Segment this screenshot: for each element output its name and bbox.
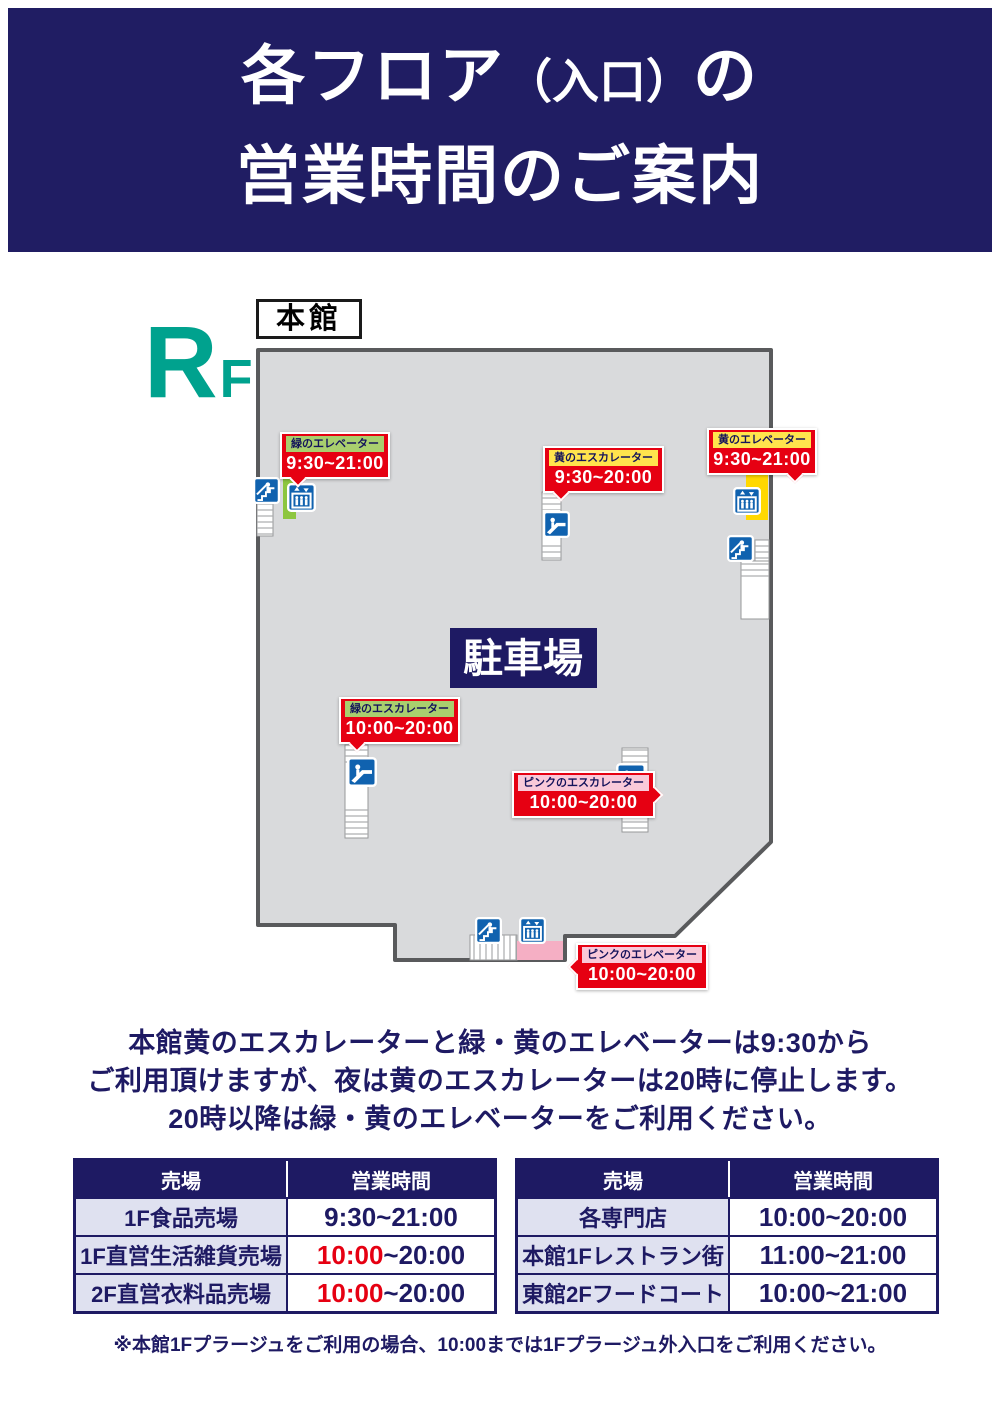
hours-main-part: 9:30~21:00 [324,1202,458,1233]
hours-main-part: 10:00~20:00 [759,1202,907,1233]
hours-red-part: 10:00 [317,1240,384,1271]
marker-green-elevator: 緑のエレベーター 9:30~21:00 [280,432,390,479]
shop-name: 各専門店 [518,1199,730,1235]
shop-name: 2F直営衣料品売場 [76,1275,288,1311]
notice-line: ご利用頂けますが、夜は黄のエスカレーターは20時に停止します。 [0,1062,1000,1100]
marker-facility-label: 黄のエレベーター [713,432,811,448]
floor-map: 駐車場 [255,345,785,1005]
marker-hours: 9:30~21:00 [713,448,811,470]
title-part-floors: 各フロア [241,40,505,112]
marker-facility-label: 黄のエスカレーター [549,450,658,466]
marker-hours: 10:00~20:00 [345,717,454,739]
shop-name: 本館1Fレストラン街 [518,1237,730,1273]
notice-line: 20時以降は緑・黄のエレベーターをご利用ください。 [0,1100,1000,1138]
marker-pink-elevator: ピンクのエレベーター 10:00~20:00 [576,943,708,990]
header-shop: 売場 [76,1161,288,1197]
table-row: 各専門店 10:00~20:00 [518,1197,936,1235]
table-row: 1F食品売場 9:30~21:00 [76,1197,494,1235]
hours-main-part: 11:00~21:00 [760,1240,907,1271]
floor-letter: R [144,316,218,410]
table-row: 本館1Fレストラン街 11:00~21:00 [518,1235,936,1273]
table-row: 2F直営衣料品売場 10:00~20:00 [76,1273,494,1311]
hours-table-main: 売場 営業時間 1F食品売場 9:30~21:00 1F直営生活雑貨売場 10:… [73,1158,497,1314]
marker-facility-label: 緑のエレベーター [286,436,384,452]
elevator-icon [288,484,315,511]
shop-name: 1F食品売場 [76,1199,288,1235]
table-row: 1F直営生活雑貨売場 10:00~20:00 [76,1235,494,1273]
marker-hours: 10:00~20:00 [582,963,702,985]
floor-letter-sub: F [220,352,253,406]
marker-hours: 9:30~21:00 [286,452,384,474]
hours-main-part: ~20:00 [383,1240,465,1271]
shop-hours: 9:30~21:00 [288,1199,494,1235]
elevator-icon [734,488,760,514]
header-hours: 営業時間 [288,1161,494,1197]
shop-hours: 10:00~20:00 [288,1237,494,1273]
hours-red-part: 10:00 [317,1278,384,1309]
notice-paragraph: 本館黄のエスカレーターと緑・黄のエレベーターは9:30から ご利用頂けますが、夜… [0,1024,1000,1138]
marker-facility-label: ピンクのエスカレーター [518,775,649,791]
poster: 各フロア（入口）の 営業時間のご案内 R F 本館 [0,0,1000,1415]
escalator-icon [544,512,569,537]
shop-hours: 10:00~20:00 [730,1199,936,1235]
table-header-row: 売場 営業時間 [518,1161,936,1197]
shop-name: 1F直営生活雑貨売場 [76,1237,288,1273]
marker-hours: 9:30~20:00 [549,466,658,488]
shop-hours: 10:00~20:00 [288,1275,494,1311]
header-hours: 営業時間 [730,1161,936,1197]
hours-main-part: ~20:00 [383,1278,465,1309]
floor-indicator: R F [144,316,253,410]
table-header-row: 売場 営業時間 [76,1161,494,1197]
footnote: ※本館1Fプラージュをご利用の場合、10:00までは1Fプラージュ外入口をご利用… [0,1330,1000,1357]
marker-hours: 10:00~20:00 [518,791,649,813]
poster-title-line2: 営業時間のご案内 [8,128,992,224]
marker-yellow-elevator: 黄のエレベーター 9:30~21:00 [707,428,817,475]
hours-table-annex: 売場 営業時間 各専門店 10:00~20:00 本館1Fレストラン街 11:0… [515,1158,939,1314]
shop-hours: 10:00~21:00 [730,1275,936,1311]
marker-green-escalator: 緑のエスカレーター 10:00~20:00 [339,697,460,744]
marker-facility-label: 緑のエスカレーター [345,701,454,717]
marker-pink-escalator: ピンクのエスカレーター 10:00~20:00 [512,771,655,818]
marker-yellow-escalator: 黄のエスカレーター 9:30~20:00 [543,446,664,493]
escalator-icon [348,758,376,786]
building-label: 本館 [256,299,362,339]
stairs-icon [476,918,501,943]
shop-name: 東館2Fフードコート [518,1275,730,1311]
header-shop: 売場 [518,1161,730,1197]
parking-area: 駐車場 [450,628,597,688]
notice-line: 本館黄のエスカレーターと緑・黄のエレベーターは9:30から [0,1024,1000,1062]
table-row: 東館2Fフードコート 10:00~21:00 [518,1273,936,1311]
title-part-entrance: （入口） [505,55,693,108]
hours-main-part: 10:00~21:00 [759,1278,907,1309]
title-part-no: の [693,40,759,112]
poster-header: 各フロア（入口）の 営業時間のご案内 [8,8,992,252]
stairs-icon [728,536,753,561]
stairs-icon [255,478,279,503]
marker-facility-label: ピンクのエレベーター [582,947,702,963]
shop-hours: 11:00~21:00 [730,1237,936,1273]
svg-text:駐車場: 駐車場 [463,637,583,681]
poster-title-line1: 各フロア（入口）の [8,30,992,128]
elevator-icon [520,918,545,943]
